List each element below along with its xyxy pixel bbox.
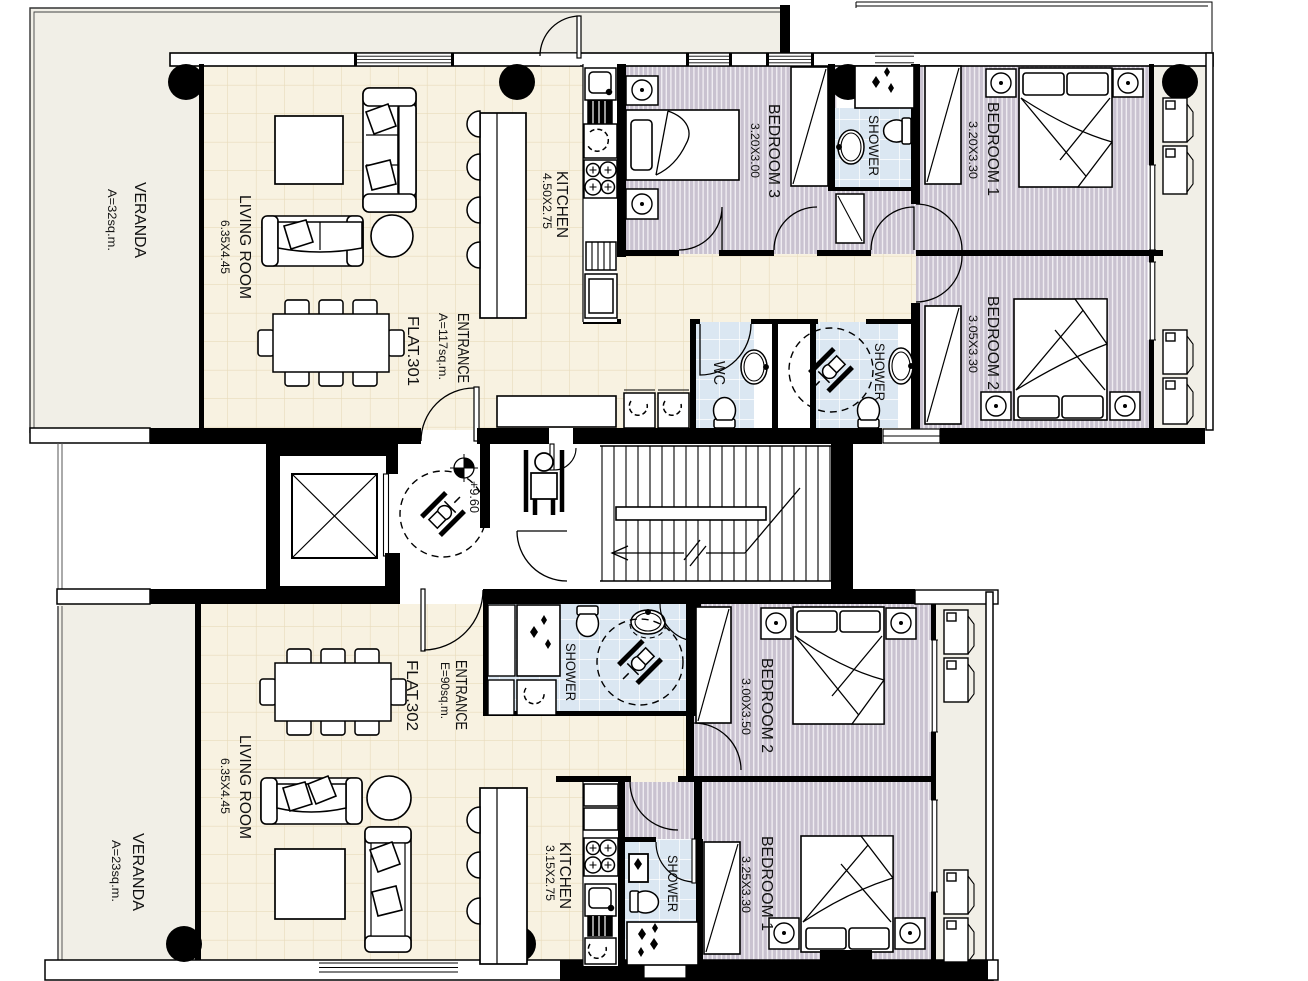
svg-text:SHOWER: SHOWER (872, 343, 887, 401)
svg-text:6.35X4.45: 6.35X4.45 (218, 220, 230, 274)
svg-text:3.00X3.50: 3.00X3.50 (739, 678, 751, 735)
svg-text:3.20X3.00: 3.20X3.00 (748, 123, 760, 178)
svg-text:WC: WC (710, 361, 727, 385)
svg-text:BEDROOM 1: BEDROOM 1 (984, 102, 1001, 196)
svg-text:KITCHEN: KITCHEN (556, 842, 573, 909)
svg-text:SHOWER: SHOWER (665, 855, 680, 912)
svg-text:SHOWER: SHOWER (866, 115, 881, 176)
svg-text:FLAT.301: FLAT.301 (404, 316, 421, 386)
svg-text:LIVING ROOM: LIVING ROOM (236, 195, 253, 299)
svg-text:3.15X2.75: 3.15X2.75 (543, 845, 555, 901)
svg-text:BEDROOM 3: BEDROOM 3 (765, 104, 782, 198)
svg-text:FLAT.302: FLAT.302 (403, 660, 420, 731)
svg-text:ENTRANCE: ENTRANCE (452, 660, 469, 730)
svg-text:6.35X4.45: 6.35X4.45 (218, 758, 230, 814)
svg-text:BEDROOM 2: BEDROOM 2 (758, 658, 775, 753)
svg-text:VERANDA: VERANDA (131, 182, 148, 258)
svg-text:3.25X3.30: 3.25X3.30 (739, 856, 751, 913)
svg-text:ENTRANCE: ENTRANCE (454, 313, 471, 383)
svg-text:3.20X3.30: 3.20X3.30 (966, 121, 978, 179)
svg-text:KITCHEN: KITCHEN (553, 171, 570, 238)
svg-text:A=32sq.m.: A=32sq.m. (105, 189, 117, 251)
svg-text:VERANDA: VERANDA (129, 833, 146, 911)
svg-text:SHOWER: SHOWER (563, 643, 578, 701)
svg-text:BEDROOM 2: BEDROOM 2 (984, 296, 1001, 390)
svg-text:E=90sq.m.: E=90sq.m. (438, 662, 450, 719)
svg-text:LIVING ROOM: LIVING ROOM (236, 735, 253, 839)
svg-text:A=23sq.m.: A=23sq.m. (109, 840, 121, 902)
svg-text:BEDROOM 1: BEDROOM 1 (758, 836, 775, 931)
svg-text:+9.60: +9.60 (467, 481, 481, 513)
svg-text:4.50X2.75: 4.50X2.75 (540, 173, 552, 229)
svg-text:3.05X3.30: 3.05X3.30 (966, 315, 978, 373)
svg-text:A=117sq.m.: A=117sq.m. (436, 313, 448, 380)
